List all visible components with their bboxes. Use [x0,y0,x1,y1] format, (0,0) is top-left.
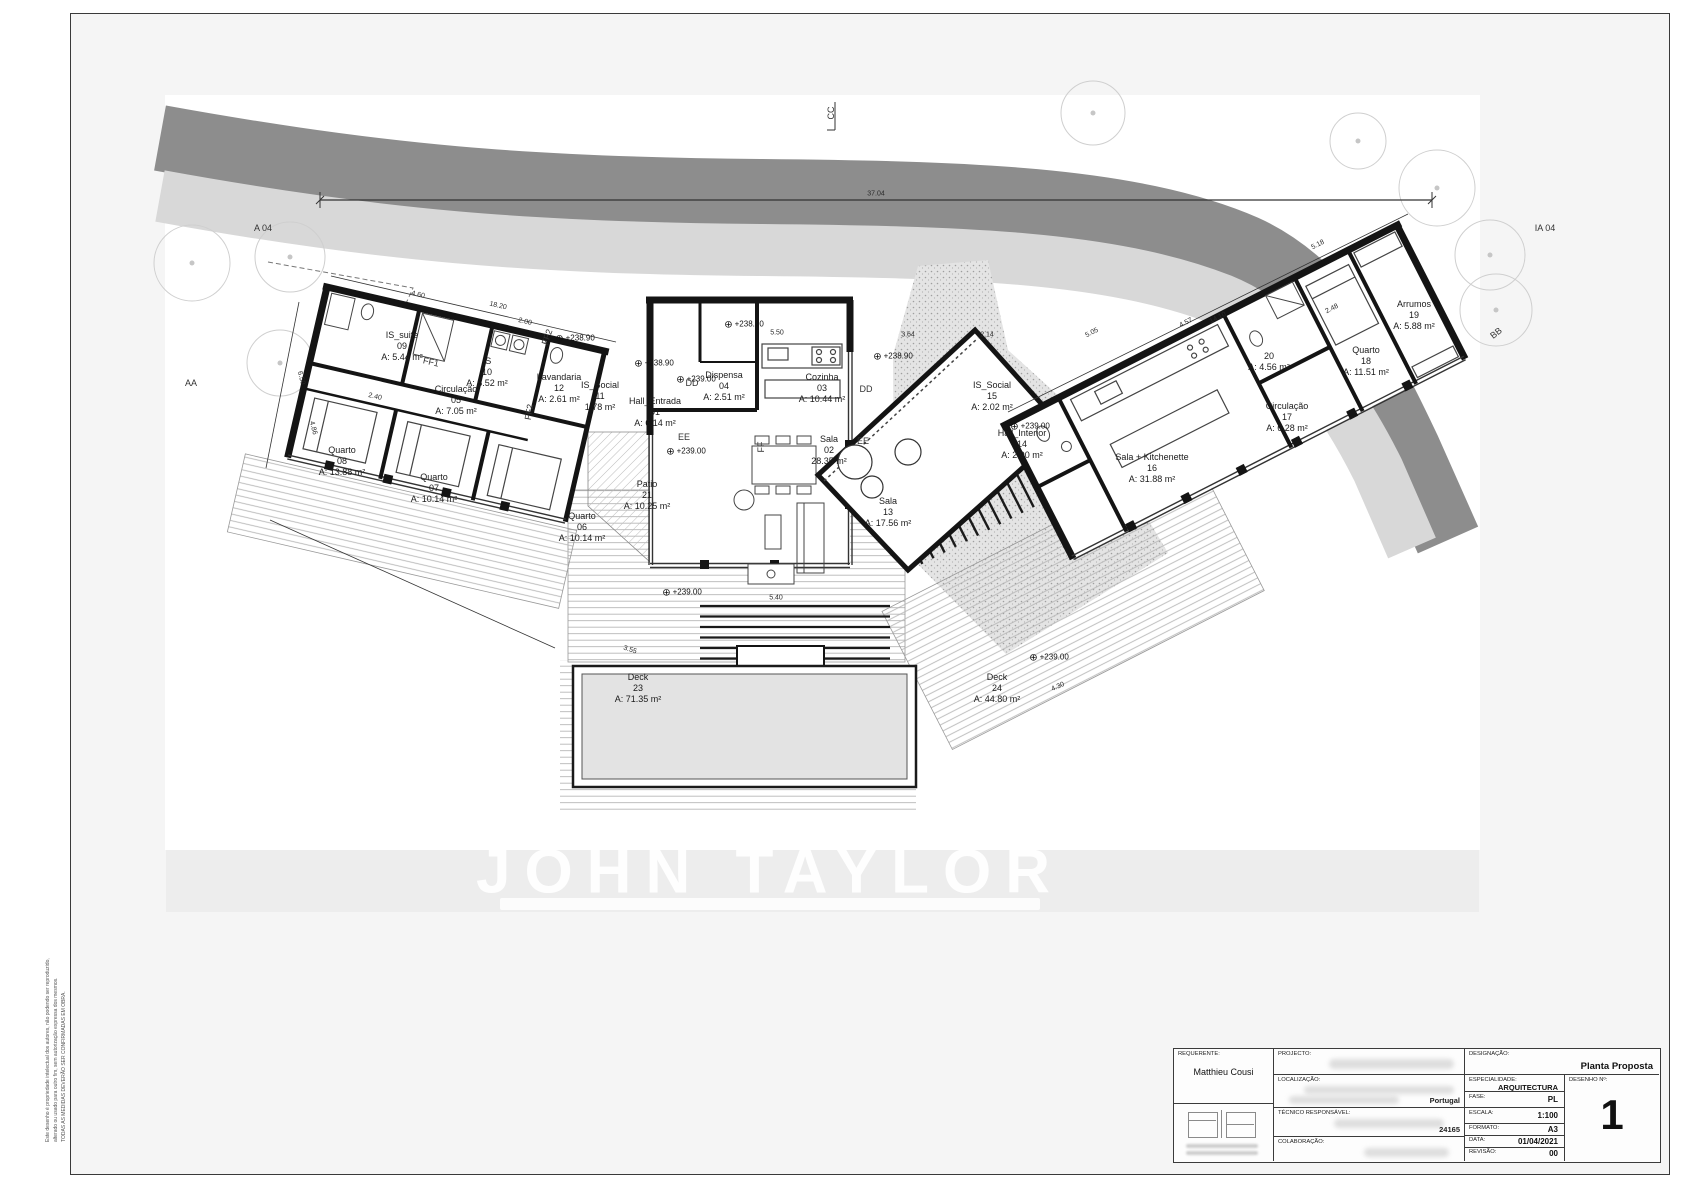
titleblock-projecto-cell: PROJECTO: [1274,1049,1465,1075]
room-label-circulacao-17: Circulação17A: 6.28 m² [1266,401,1309,433]
floor-plan-canvas [0,0,1684,1191]
room-label-cozinha: Cozinha03A: 10.44 m² [799,372,846,404]
section-marker-ee: EE [857,436,869,446]
titleblock-fase-cell: FASE: PL [1465,1092,1565,1108]
room-label-quarto-06: Quarto06A: 10.14 m² [559,511,606,543]
watermark-text: JOHN TAYLOR [476,837,1064,908]
elevation-icon: ⊕ [724,320,732,331]
section-marker-dd: DD [860,384,873,394]
room-label-is-10: IS10A: 5.52 m² [466,356,508,388]
titleblock-especialidade-cell: ESPECIALIDADE: ARQUITECTURA [1465,1075,1565,1092]
dim-text: 5.50 [770,330,784,337]
desenho-number: 1 [1569,1091,1655,1139]
logo-caption-blur [1186,1144,1258,1148]
titleblock-logo-cell [1174,1104,1274,1161]
elevation-marker: ⊕+239.00 [1029,653,1069,664]
elevation-marker: ⊕+238.70 [724,320,764,331]
titleblock-localizacao-cell: LOCALIZAÇÃO: Portugal [1274,1075,1465,1108]
titleblock-formato-cell: FORMATO: A3 [1465,1124,1565,1136]
section-marker-ee: EE [678,432,690,442]
dim-text: 5.40 [769,595,783,602]
architect-logo [1188,1112,1218,1138]
section-marker-dd: DD [686,378,699,388]
tecnico-fragment: 24165 [1439,1125,1460,1134]
titleblock-desenho-cell: DESENHO Nº: 1 [1565,1075,1659,1161]
elevation-marker: ⊕+238.90 [873,352,913,363]
room-label-patio-21: Patio21A: 10.25 m² [624,479,671,511]
localizacao-fragment: Portugal [1430,1096,1460,1105]
room-label-quarto-07: Quarto07A: 10.14 m² [411,472,458,504]
watermark-subtitle-bar [500,898,1040,910]
room-label-deck-23: Deck23A: 71.35 m² [615,672,662,704]
logo-divider [1221,1110,1222,1138]
section-marker-ia04: IA 04 [1535,223,1556,233]
elevation-marker: ⊕+239.00 [662,588,702,599]
elevation-marker: ⊕+238.90 [555,334,595,345]
redacted-text [1289,1096,1399,1104]
redacted-text [1364,1148,1449,1157]
titleblock-designacao-cell: DESIGNAÇÃO: Planta Proposta [1465,1049,1659,1075]
room-label-is-suite-09: IS_suite09A: 5.44 m² [381,330,423,362]
elevation-icon: ⊕ [873,352,881,363]
room-label-deck-24: Deck24A: 44.80 m² [974,672,1021,704]
architect-logo [1226,1112,1256,1138]
room-label-is-20: 20A: 4.56 m² [1248,351,1290,373]
elevation-icon: ⊕ [662,588,670,599]
designacao-value: Planta Proposta [1469,1061,1655,1072]
logo-caption-blur [1186,1151,1258,1155]
section-marker-aa: AA [185,378,197,388]
room-label-circulacao-05: Circulação05A: 7.05 m² [435,384,478,416]
redacted-text [1329,1059,1454,1069]
titleblock-revisao-cell: REVISÃO: 00 [1465,1148,1565,1161]
elevation-icon: ⊕ [1010,422,1018,433]
room-label-sala-kitchenette-16: Sala + Kitchenette16A: 31.88 m² [1115,452,1188,484]
room-label-arrumos-19: Arrumos19A: 5.88 m² [1393,299,1435,331]
room-label-is-social-11: IS_Social111.78 m² [581,380,619,412]
room-label-hall-interior-14: Hall_Interior14A: 2.90 m² [998,428,1047,460]
titleblock-colaboracao-cell: COLABORAÇÃO: [1274,1137,1465,1161]
elevation-icon: ⊕ [666,447,674,458]
elevation-icon: ⊕ [676,375,684,386]
elevation-marker: ⊕+239.00 [1010,422,1050,433]
redacted-text [1334,1119,1444,1128]
room-label-sala-13: Sala13A: 17.56 m² [865,496,912,528]
elevation-icon: ⊕ [555,334,563,345]
room-label-is-social-15: IS_Social15A: 2.02 m² [971,380,1013,412]
room-label-sala-02: Sala0228.35 m² [811,434,847,466]
room-label-lavandaria-12: Lavandaria12A: 2.61 m² [537,372,582,404]
requerente-value: Matthieu Cousi [1178,1067,1269,1077]
room-label-quarto-18: Quarto18A: 11.51 m² [1343,345,1389,377]
dim-text: 2.14 [980,332,994,339]
titleblock-escala-cell: ESCALA: 1:100 [1465,1108,1565,1124]
section-marker-ff: FF [756,442,766,453]
elevation-icon: ⊕ [1029,653,1037,664]
section-marker-a04: A 04 [254,223,272,233]
section-marker-cc: CC [826,107,836,120]
dim-text: 37.04 [867,191,885,198]
logo-divider [1226,1124,1254,1125]
elevation-marker: ⊕+238.90 [634,359,674,370]
titleblock-requerente-cell: REQUERENTE: Matthieu Cousi [1174,1049,1274,1104]
elevation-icon: ⊕ [634,359,642,370]
title-block: REQUERENTE: Matthieu Cousi PROJECTO: LOC… [1173,1048,1661,1163]
copyright-note: Este desenho é propriedade intelectual d… [44,890,68,1142]
dim-text: 3.64 [901,332,915,339]
titleblock-tecnico-cell: TÉCNICO RESPONSÁVEL: 24165 [1274,1108,1465,1137]
elevation-marker: ⊕+239.00 [666,447,706,458]
room-label-quarto-08: Quarto08A: 13.88 m² [319,445,366,477]
logo-divider [1188,1120,1216,1121]
redacted-text [1304,1086,1454,1094]
room-label-hall-entrada: Hall_Entrada01A: 6.14 m² [629,396,681,428]
titleblock-data-cell: DATA: 01/04/2021 [1465,1136,1565,1148]
